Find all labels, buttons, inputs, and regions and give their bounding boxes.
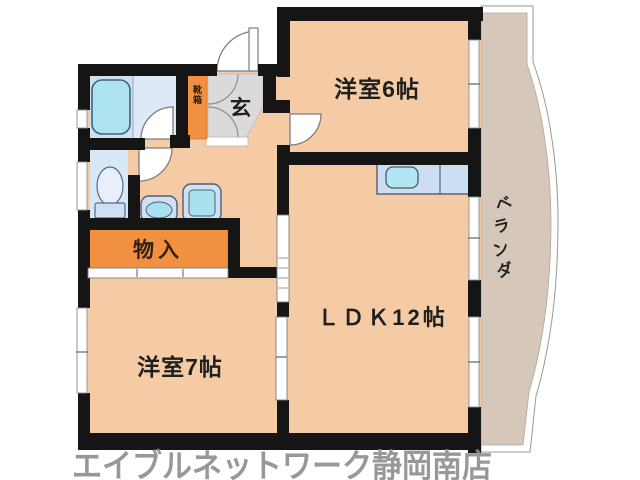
room-label-balcony: ベ ラ ン ダ (496, 196, 512, 282)
washbasin-bowl-icon (146, 202, 172, 218)
wall (277, 165, 289, 215)
room-label-western7: 洋室7帖 (110, 348, 250, 382)
wall (277, 7, 483, 21)
wall (277, 7, 290, 77)
kitchen-sink-icon (386, 167, 418, 188)
toilet-icon (97, 167, 123, 205)
room-label-storage: 物入 (108, 234, 208, 264)
entrance-step (206, 137, 248, 146)
balcony-char: ラ (492, 217, 512, 239)
wall (468, 128, 481, 197)
wall (78, 210, 90, 308)
agency-watermark: エイブルネットワーク静岡南店 (72, 439, 492, 480)
toilet-tank-icon (95, 203, 125, 218)
wall (468, 7, 481, 40)
wall (277, 300, 289, 317)
wall (277, 152, 477, 165)
window (77, 162, 87, 210)
sliding-door-western7-ldk (276, 317, 287, 400)
wall (468, 280, 481, 317)
room-label-ldk: ＬＤＫ12帖 (300, 300, 465, 332)
room-label-shoebox: 靴箱 (192, 85, 201, 131)
balcony-char: ン (491, 240, 511, 262)
floorplan: 洋室6帖 玄 靴箱 物入 洋室7帖 ＬＤＫ12帖 ベ ラ ン ダ エイブルネット… (0, 0, 640, 480)
room-label-entrance: 玄 (230, 92, 251, 122)
balcony-char: ベ (493, 194, 514, 217)
room-label-western6: 洋室6帖 (307, 70, 447, 104)
wall (78, 64, 90, 110)
wall (78, 218, 238, 230)
window (77, 308, 87, 393)
closet-sliding-front (88, 268, 228, 278)
wall (263, 100, 290, 113)
window (77, 110, 87, 128)
balcony-char: ダ (495, 262, 514, 283)
bathtub-icon (92, 80, 130, 134)
washer-icon (189, 190, 215, 216)
wall (228, 267, 277, 278)
front-door-leaf (249, 28, 258, 71)
wall (78, 128, 90, 162)
wall (78, 64, 217, 76)
wall (170, 135, 190, 148)
